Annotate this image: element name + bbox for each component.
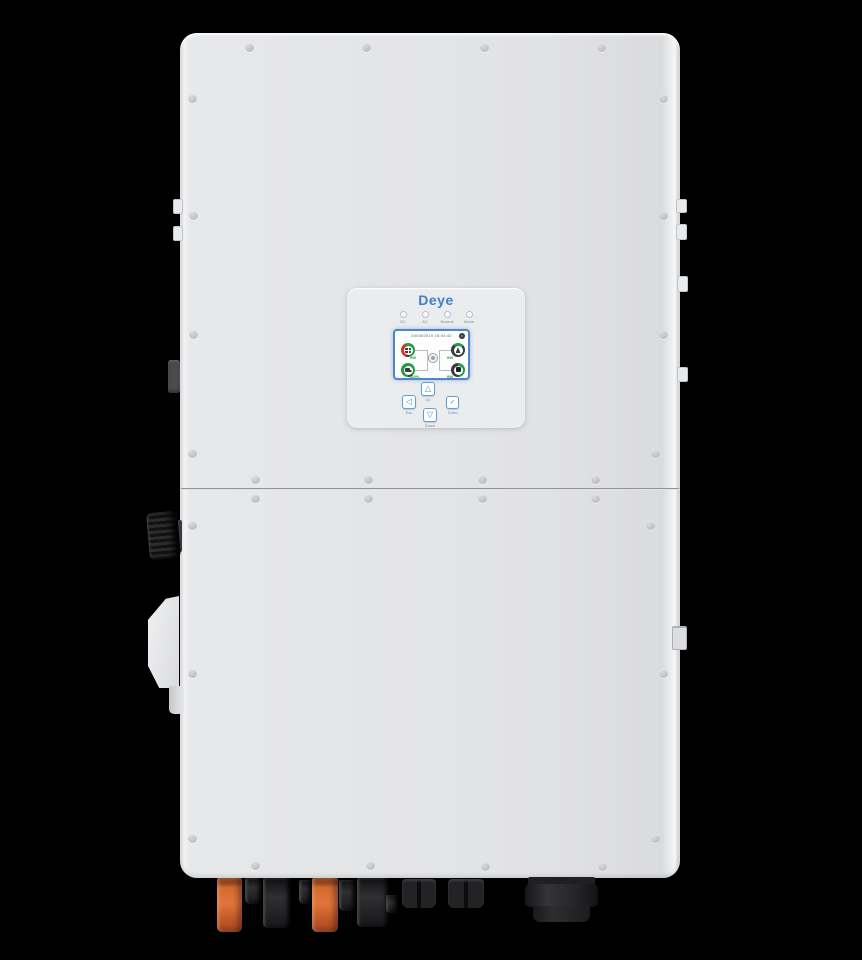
energy-flow-hub-icon — [428, 353, 438, 363]
right-latch — [672, 626, 687, 650]
screw — [251, 494, 260, 503]
screw — [651, 449, 660, 458]
mc4-connector-orange — [217, 878, 242, 932]
screw — [366, 861, 375, 870]
alarm-led-icon — [466, 311, 473, 318]
screw — [188, 669, 197, 678]
cable-gland-body — [525, 884, 598, 907]
load-value: 0W — [447, 374, 453, 379]
screw — [364, 475, 373, 484]
down-button-label: Down — [418, 423, 442, 428]
solar-panel-icon — [405, 348, 411, 353]
flow-line — [439, 350, 451, 351]
flow-line — [415, 350, 427, 351]
dc-led-icon — [400, 311, 407, 318]
connector-stub — [339, 880, 356, 911]
screw — [245, 43, 254, 52]
normal-led-icon — [444, 311, 451, 318]
left-side-plate — [146, 596, 179, 688]
esc-button[interactable]: ◁ — [402, 395, 416, 409]
connector-stub — [245, 878, 262, 904]
twin-connector — [448, 879, 484, 908]
led-dc: DC — [394, 311, 412, 324]
screw — [659, 94, 668, 103]
screw — [189, 330, 198, 339]
status-led-row: DC AC Normal Alarm — [394, 311, 478, 324]
pv-value: 0W — [410, 355, 416, 360]
right-hinge-nub — [676, 224, 687, 240]
battery-icon — [405, 368, 410, 372]
connector-stub — [386, 895, 398, 913]
left-side-stub — [169, 686, 184, 714]
left-hinge-nub — [173, 226, 183, 241]
flow-line — [439, 370, 451, 371]
screw — [659, 669, 668, 678]
screw — [591, 475, 600, 484]
brand-logo: Deye — [347, 292, 525, 308]
right-hinge-nub — [676, 199, 687, 213]
battery-value: 100% — [409, 374, 419, 379]
product-image-stage: Deye DC AC Normal Alarm 04/06/2019 15:04… — [0, 0, 862, 960]
cable-gland-bottom — [533, 906, 590, 922]
screw — [480, 43, 489, 52]
lcd-datetime: 04/06/2019 15:04:40 — [395, 333, 468, 338]
cabinet-seam — [181, 488, 679, 490]
screw — [598, 862, 607, 871]
lcd-screen: 04/06/2019 15:04:40 0W 0W 100% 0W — [393, 329, 470, 380]
right-hinge-nub — [677, 276, 688, 292]
screw — [646, 521, 655, 530]
enter-button-label: Enter — [441, 410, 465, 415]
led-alarm: Alarm — [460, 311, 478, 324]
screw — [188, 521, 197, 530]
screw — [478, 494, 487, 503]
mc4-connector-black — [357, 878, 389, 927]
screw — [188, 449, 197, 458]
screw — [659, 211, 668, 220]
screw — [188, 834, 197, 843]
right-hinge-nub — [677, 367, 688, 382]
screw — [591, 494, 600, 503]
screw — [481, 862, 490, 871]
down-button[interactable]: ▽ — [423, 408, 437, 422]
screw — [659, 330, 668, 339]
up-button-label: Up — [416, 397, 440, 402]
led-normal: Normal — [438, 311, 456, 324]
screw — [189, 211, 198, 220]
left-bracket — [168, 360, 180, 393]
screw — [362, 43, 371, 52]
connector-stub — [299, 880, 312, 904]
screw — [188, 94, 197, 103]
up-button[interactable]: △ — [421, 382, 435, 396]
screw — [597, 43, 606, 52]
twin-connector — [402, 879, 436, 908]
screw — [251, 861, 260, 870]
screw — [251, 475, 260, 484]
flow-line — [439, 350, 440, 371]
dc-disconnect-switch[interactable] — [146, 511, 181, 561]
screw — [651, 834, 660, 843]
screw — [364, 494, 373, 503]
led-ac: AC — [416, 311, 434, 324]
mc4-connector-black — [263, 878, 291, 928]
screw — [478, 475, 487, 484]
left-hinge-nub — [173, 199, 183, 214]
mc4-connector-orange — [312, 878, 338, 932]
grid-value: 0W — [447, 355, 453, 360]
load-icon — [456, 367, 461, 372]
inverter-cabinet — [180, 33, 680, 878]
enter-button[interactable]: ✓ — [446, 396, 459, 409]
settings-gear-icon[interactable] — [459, 333, 465, 339]
esc-button-label: Esc — [397, 410, 421, 415]
ac-led-icon — [422, 311, 429, 318]
flow-line — [415, 370, 427, 371]
